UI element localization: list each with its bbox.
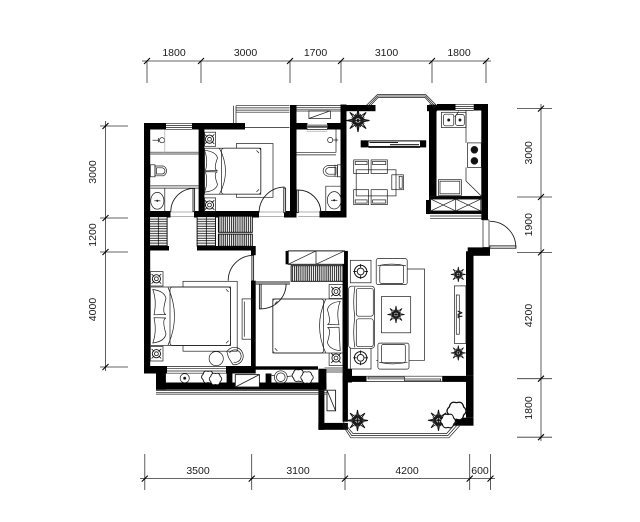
svg-text:600: 600 (471, 465, 489, 477)
svg-text:4200: 4200 (523, 304, 535, 328)
svg-text:1200: 1200 (87, 223, 99, 247)
svg-text:1800: 1800 (447, 47, 471, 59)
svg-text:3000: 3000 (523, 141, 535, 165)
svg-text:1900: 1900 (523, 213, 535, 237)
svg-text:1700: 1700 (304, 47, 328, 59)
svg-text:1800: 1800 (162, 47, 186, 59)
svg-text:4200: 4200 (395, 465, 419, 477)
svg-text:3500: 3500 (186, 465, 210, 477)
svg-text:1800: 1800 (523, 396, 535, 420)
svg-text:3000: 3000 (87, 160, 99, 184)
svg-text:3100: 3100 (286, 465, 310, 477)
svg-text:3000: 3000 (234, 47, 258, 59)
svg-text:TV: TV (458, 311, 464, 318)
svg-text:3100: 3100 (375, 47, 399, 59)
svg-text:4000: 4000 (87, 298, 99, 322)
